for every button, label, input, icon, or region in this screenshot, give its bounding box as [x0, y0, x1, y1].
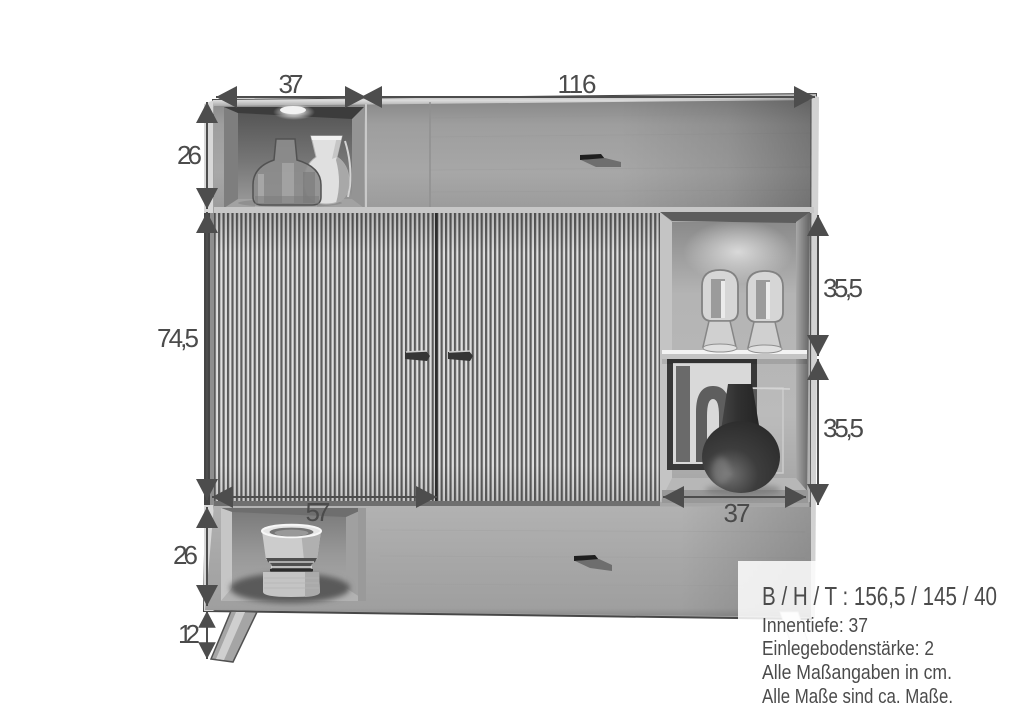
svg-text:Alle Maße sind ca. Maße.: Alle Maße sind ca. Maße. — [762, 686, 953, 708]
svg-text:35,5: 35,5 — [823, 413, 864, 443]
svg-text:74,5: 74,5 — [157, 323, 199, 353]
svg-text:12: 12 — [178, 619, 200, 649]
svg-text:37: 37 — [724, 498, 751, 528]
svg-text:26: 26 — [173, 540, 198, 570]
svg-text:37: 37 — [279, 69, 304, 99]
svg-text:B / H / T : 156,5 / 145 / 40: B / H / T : 156,5 / 145 / 40 — [762, 581, 997, 611]
svg-text:Innentiefe: 37: Innentiefe: 37 — [762, 615, 868, 637]
svg-text:26: 26 — [177, 140, 202, 170]
svg-text:116: 116 — [558, 69, 597, 99]
svg-text:Einlegebodenstärke: 2: Einlegebodenstärke: 2 — [762, 638, 934, 660]
svg-text:57: 57 — [306, 497, 331, 527]
svg-text:35,5: 35,5 — [823, 273, 863, 303]
svg-text:Alle Maßangaben in cm.: Alle Maßangaben in cm. — [762, 662, 952, 684]
